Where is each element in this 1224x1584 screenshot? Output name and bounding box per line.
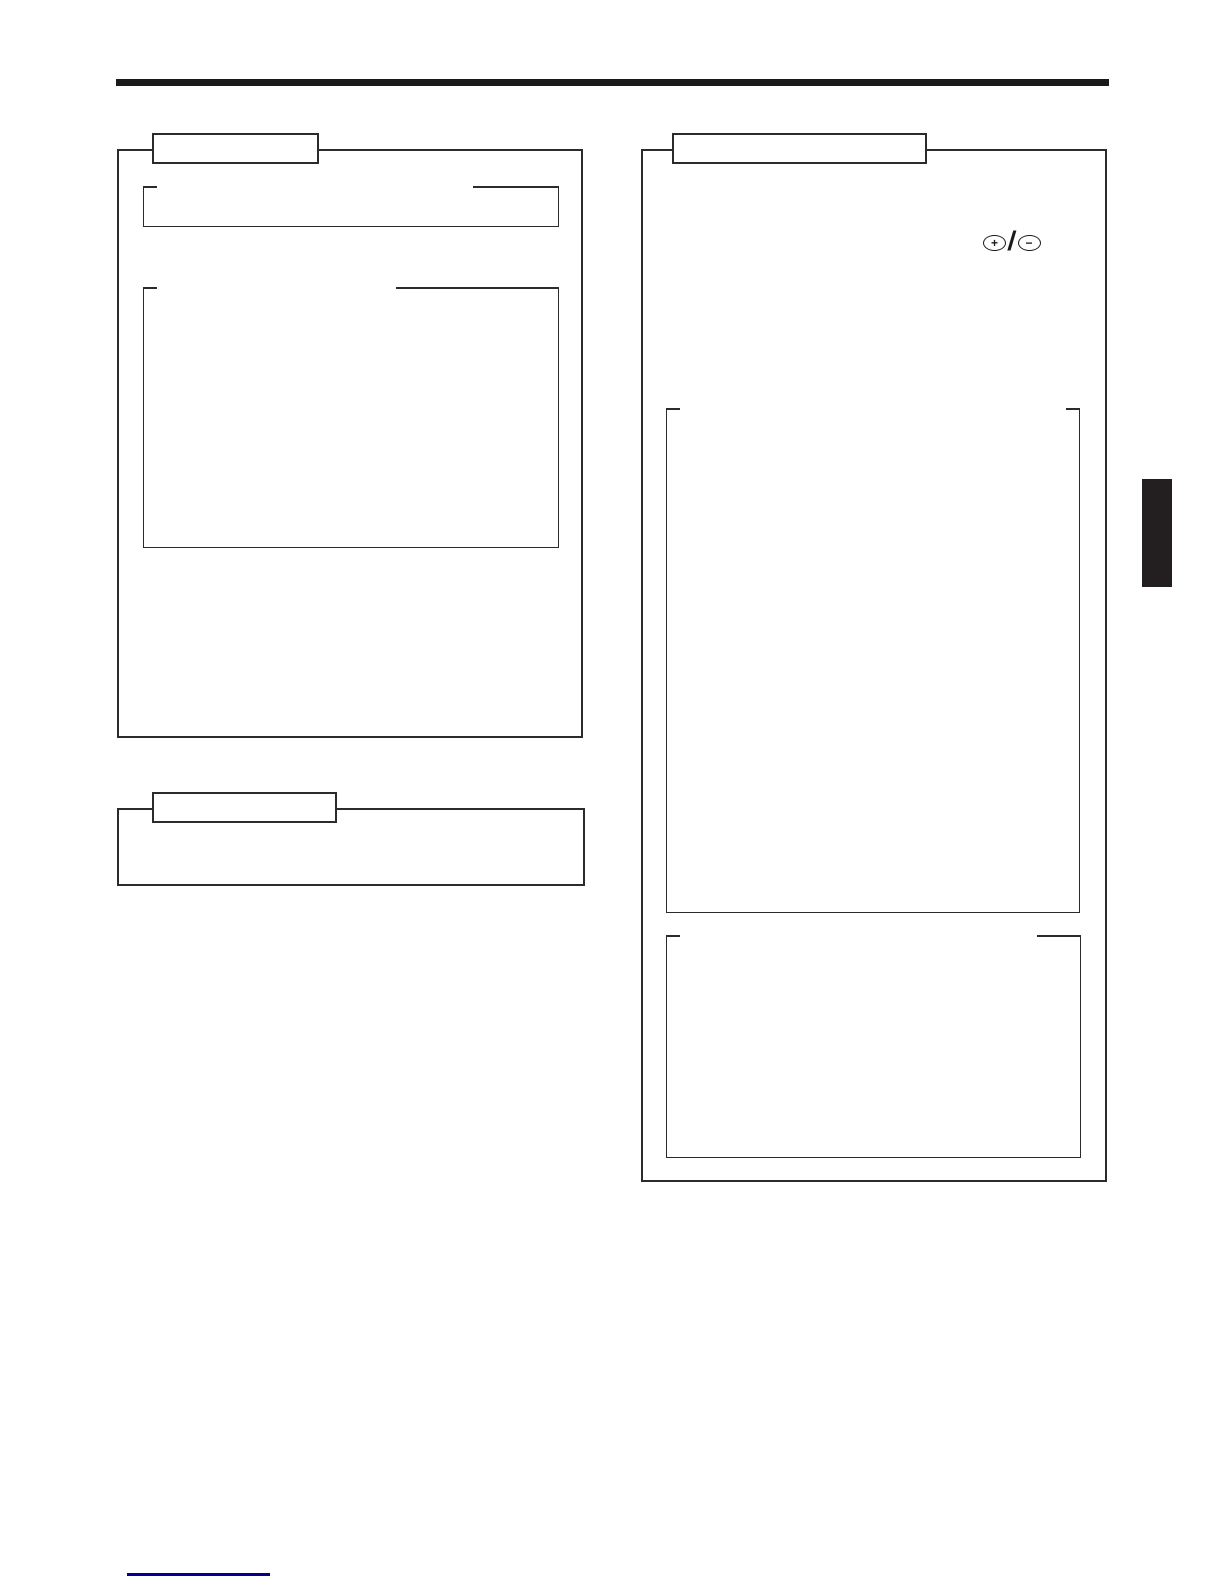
border-segment <box>473 186 558 188</box>
left-section-1-field-box-bottom <box>143 287 559 548</box>
border-segment <box>1037 935 1080 937</box>
border-segment <box>667 408 680 410</box>
right-section-title-tab <box>672 133 927 164</box>
border-segment <box>1066 408 1079 410</box>
header-rule <box>116 79 1109 86</box>
border-segment <box>144 287 157 289</box>
minus-circle-icon: − <box>1018 235 1041 251</box>
left-section-1-title-tab <box>152 133 319 164</box>
left-section-2-title-tab <box>152 792 337 823</box>
border-segment <box>396 287 558 289</box>
footer-rule <box>127 1573 270 1576</box>
left-section-1-field-box-top <box>143 186 559 227</box>
border-segment <box>144 186 157 188</box>
right-section-field-box-top <box>666 408 1080 913</box>
plus-circle-icon: + <box>983 235 1006 251</box>
scanned-manual-page: + / − <box>0 0 1224 1584</box>
chapter-index-tab <box>1142 479 1172 587</box>
slash-separator: / <box>1007 228 1017 255</box>
right-section-field-box-bottom <box>666 935 1081 1158</box>
border-segment <box>667 935 680 937</box>
plus-minus-button-icons: + / − <box>983 228 1041 257</box>
